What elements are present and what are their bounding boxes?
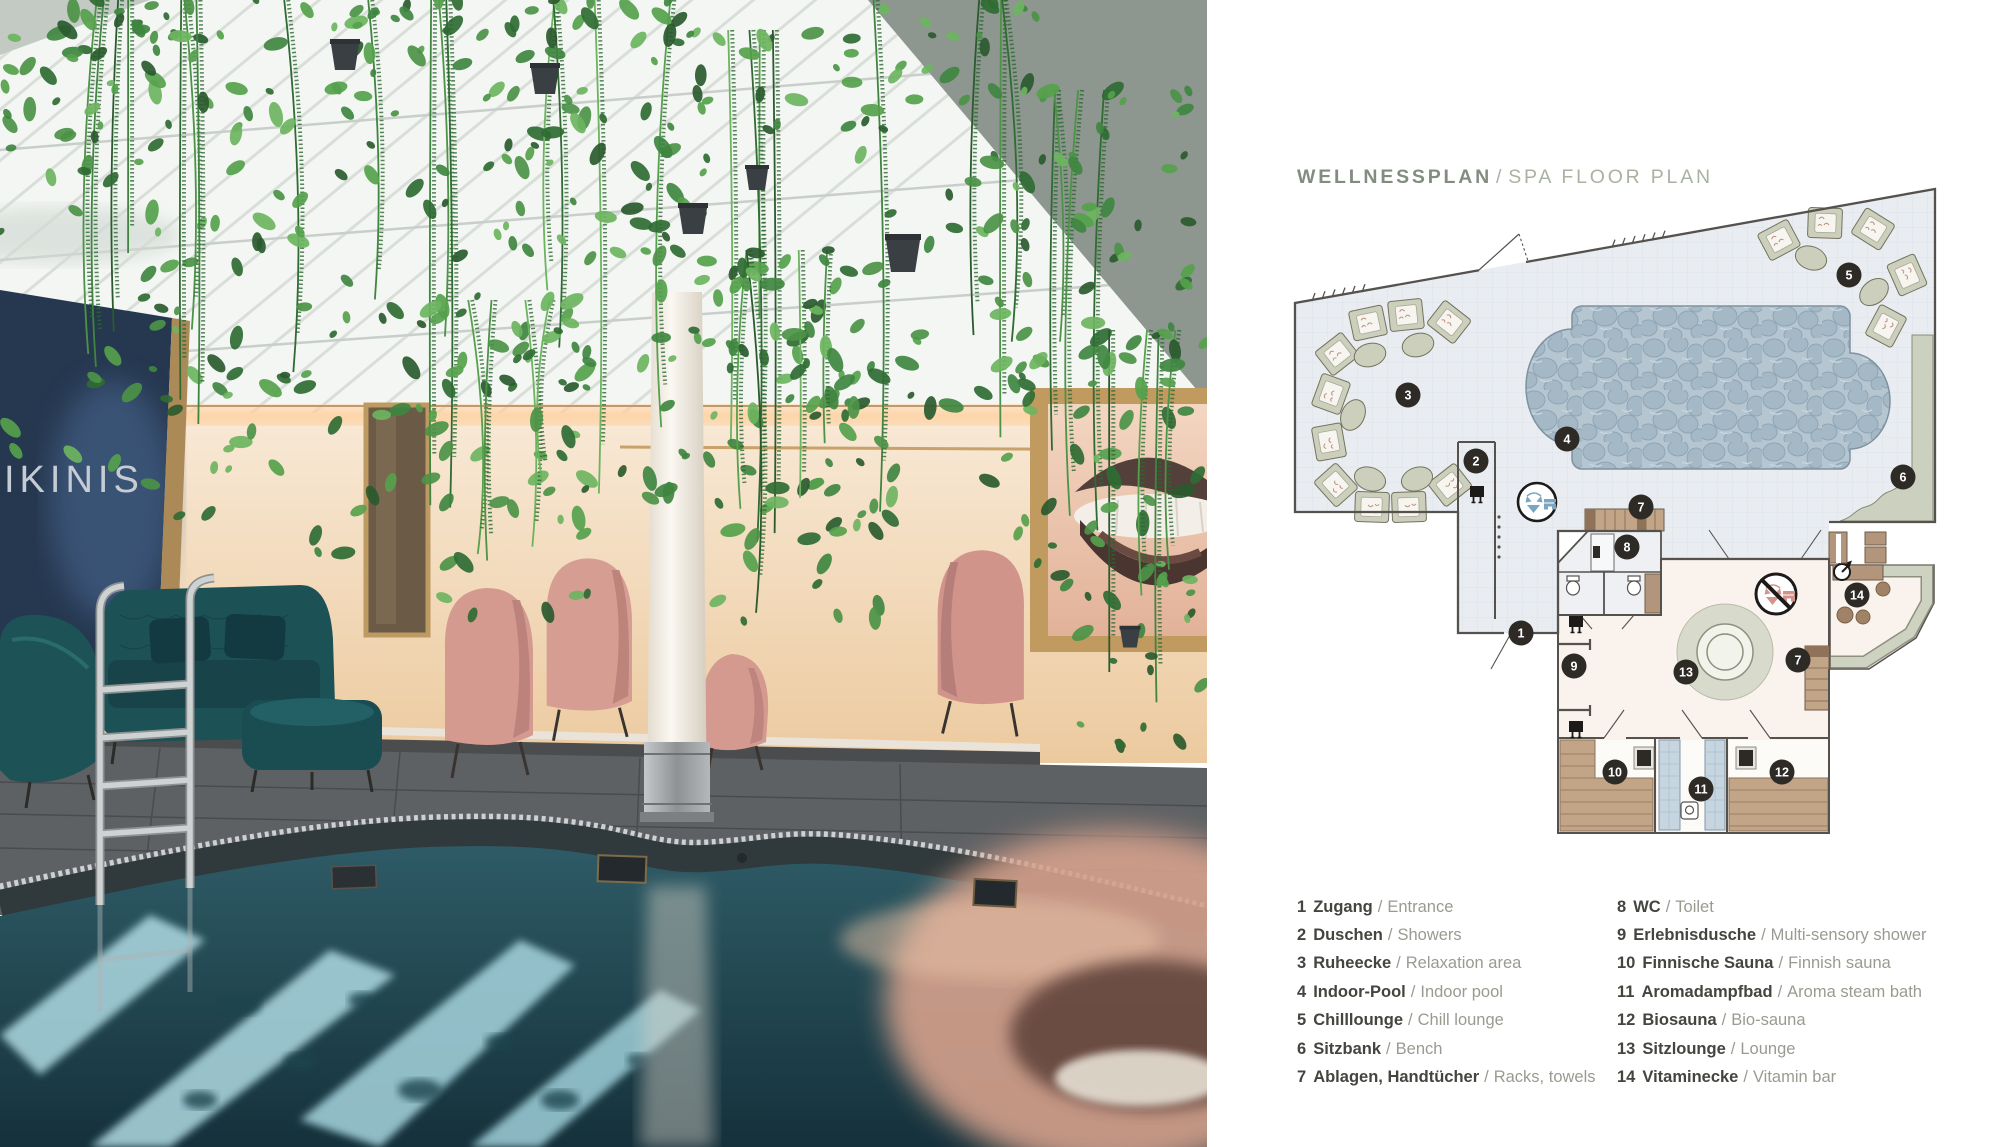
plan-marker-14: 14 <box>1845 583 1870 608</box>
legend-item-3: 3Ruheecke/Relaxation area <box>1297 950 1617 978</box>
legend-separator: / <box>1717 1011 1732 1030</box>
legend-separator: / <box>1373 898 1388 917</box>
legend-item-11: 11Aromadampfbad/Aroma steam bath <box>1617 978 1947 1006</box>
legend-label-en: Entrance <box>1387 898 1453 917</box>
legend-label-de: Vitaminecke <box>1642 1068 1738 1087</box>
plan-marker-12: 12 <box>1770 760 1795 785</box>
legend-number: 14 <box>1617 1068 1635 1087</box>
legend-item-5: 5Chilllounge/Chill lounge <box>1297 1007 1617 1035</box>
legend-label-de: Duschen <box>1313 926 1383 945</box>
legend-label-de: Sitzlounge <box>1642 1040 1725 1059</box>
vitamin-bar <box>1830 561 1934 670</box>
plan-marker-4: 4 <box>1555 427 1580 452</box>
sauna-stove-icon <box>1634 747 1654 769</box>
legend-label-en: Multi-sensory shower <box>1771 926 1927 945</box>
doorway-block <box>1829 532 1886 563</box>
legend-number: 6 <box>1297 1040 1306 1059</box>
legend-separator: / <box>1738 1068 1753 1087</box>
legend-label-de: Sitzbank <box>1313 1040 1381 1059</box>
legend-separator: / <box>1756 926 1771 945</box>
legend-label-en: Indoor pool <box>1420 983 1503 1002</box>
legend-number: 5 <box>1297 1011 1306 1030</box>
plan-marker-1: 1 <box>1509 621 1534 646</box>
plan-marker-11: 11 <box>1689 777 1714 802</box>
legend-label-de: Erlebnisdusche <box>1633 926 1756 945</box>
plan-marker-7: 7 <box>1629 495 1654 520</box>
plan-marker-8: 8 <box>1615 535 1640 560</box>
round-lounge <box>1677 604 1773 700</box>
legend-number: 2 <box>1297 926 1306 945</box>
floor-plan-panel: WELLNESSPLAN/SPA FLOOR PLAN <box>1207 0 2000 1147</box>
legend-number: 9 <box>1617 926 1626 945</box>
legend-label-de: Ablagen, Handtücher <box>1313 1068 1479 1087</box>
legend-separator: / <box>1773 983 1788 1002</box>
legend: 1Zugang/Entrance2Duschen/Showers3Ruheeck… <box>1297 893 1947 1092</box>
svg-text:10: 10 <box>1608 766 1622 780</box>
legend-label-de: WC <box>1633 898 1661 917</box>
spa-photo: IKINIS <box>0 0 1207 1147</box>
legend-item-13: 13Sitzlounge/Lounge <box>1617 1035 1947 1063</box>
legend-separator: / <box>1479 1068 1494 1087</box>
legend-label-de: Indoor-Pool <box>1313 983 1406 1002</box>
plan-marker-13: 13 <box>1674 660 1699 685</box>
legend-label-en: Toilet <box>1675 898 1714 917</box>
plan-marker-6: 6 <box>1891 465 1916 490</box>
legend-separator: / <box>1773 954 1788 973</box>
legend-item-7: 7Ablagen, Handtücher/Racks, towels <box>1297 1063 1617 1091</box>
legend-separator: / <box>1381 1040 1396 1059</box>
legend-column-left: 1Zugang/Entrance2Duschen/Showers3Ruheeck… <box>1297 893 1617 1092</box>
legend-item-8: 8WC/Toilet <box>1617 893 1947 921</box>
legend-item-2: 2Duschen/Showers <box>1297 921 1617 949</box>
legend-separator: / <box>1403 1011 1418 1030</box>
legend-number: 3 <box>1297 954 1306 973</box>
legend-number: 11 <box>1617 983 1634 1002</box>
legend-number: 13 <box>1617 1040 1635 1059</box>
legend-item-10: 10Finnische Sauna/Finnish sauna <box>1617 950 1947 978</box>
legend-item-14: 14Vitaminecke/Vitamin bar <box>1617 1063 1947 1091</box>
svg-text:12: 12 <box>1775 766 1789 780</box>
legend-number: 8 <box>1617 898 1626 917</box>
svg-text:6: 6 <box>1900 471 1907 485</box>
legend-label-en: Racks, towels <box>1494 1068 1596 1087</box>
brochure-spread: IKINIS <box>0 0 2000 1147</box>
legend-separator: / <box>1383 926 1398 945</box>
legend-label-de: Chilllounge <box>1313 1011 1403 1030</box>
svg-text:1: 1 <box>1518 627 1525 641</box>
legend-item-12: 12Biosauna/Bio-sauna <box>1617 1007 1947 1035</box>
legend-label-de: Ruheecke <box>1313 954 1391 973</box>
legend-label-en: Vitamin bar <box>1753 1068 1836 1087</box>
legend-label-en: Relaxation area <box>1406 954 1522 973</box>
svg-text:4: 4 <box>1564 433 1571 447</box>
svg-text:7: 7 <box>1795 654 1802 668</box>
svg-text:3: 3 <box>1405 389 1412 403</box>
legend-item-6: 6Sitzbank/Bench <box>1297 1035 1617 1063</box>
plan-marker-3: 3 <box>1396 383 1421 408</box>
legend-label-en: Lounge <box>1740 1040 1795 1059</box>
plan-marker-10: 10 <box>1603 760 1628 785</box>
legend-label-en: Aroma steam bath <box>1787 983 1922 1002</box>
swimwear-allowed-icon <box>1518 483 1556 521</box>
column-reflection <box>640 886 714 1147</box>
legend-label-en: Bio-sauna <box>1731 1011 1805 1030</box>
legend-label-en: Chill lounge <box>1418 1011 1504 1030</box>
legend-label-de: Biosauna <box>1642 1011 1716 1030</box>
plan-marker-7: 7 <box>1786 648 1811 673</box>
legend-column-right: 8WC/Toilet9Erlebnisdusche/Multi-sensory … <box>1617 893 1947 1092</box>
svg-text:11: 11 <box>1694 783 1707 797</box>
plan-marker-5: 5 <box>1837 263 1862 288</box>
wall-text: IKINIS <box>4 459 144 501</box>
legend-label-de: Finnische Sauna <box>1642 954 1773 973</box>
steam-seat-icon <box>1681 802 1698 819</box>
legend-label-de: Zugang <box>1313 898 1373 917</box>
legend-label-de: Aromadampfbad <box>1641 983 1772 1002</box>
plan-marker-9: 9 <box>1562 654 1587 679</box>
svg-text:5: 5 <box>1846 269 1853 283</box>
biosauna-benches <box>1729 778 1828 831</box>
legend-number: 7 <box>1297 1068 1306 1087</box>
svg-text:7: 7 <box>1638 501 1645 515</box>
legend-number: 1 <box>1297 898 1306 917</box>
legend-separator: / <box>1661 898 1676 917</box>
plan-marker-2: 2 <box>1464 449 1489 474</box>
svg-text:13: 13 <box>1679 666 1693 680</box>
svg-text:2: 2 <box>1473 455 1480 469</box>
legend-item-1: 1Zugang/Entrance <box>1297 893 1617 921</box>
legend-item-9: 9Erlebnisdusche/Multi-sensory shower <box>1617 921 1947 949</box>
legend-separator: / <box>1391 954 1406 973</box>
gold-mirror <box>366 405 428 635</box>
legend-label-en: Showers <box>1397 926 1461 945</box>
legend-separator: / <box>1406 983 1421 1002</box>
legend-item-4: 4Indoor-Pool/Indoor pool <box>1297 978 1617 1006</box>
lips-artwork <box>1030 388 1207 652</box>
legend-number: 12 <box>1617 1011 1635 1030</box>
svg-text:8: 8 <box>1624 541 1631 555</box>
spa-floor-plan: 12345677891011121314 <box>1282 182 1942 852</box>
legend-label-en: Bench <box>1396 1040 1443 1059</box>
legend-separator: / <box>1726 1040 1741 1059</box>
no-swimwear-icon <box>1756 574 1796 614</box>
legend-label-en: Finnish sauna <box>1788 954 1891 973</box>
indoor-pool <box>1526 306 1890 469</box>
sauna-stove-icon <box>1736 747 1756 769</box>
legend-number: 4 <box>1297 983 1306 1002</box>
svg-text:9: 9 <box>1571 660 1578 674</box>
legend-number: 10 <box>1617 954 1635 973</box>
svg-text:14: 14 <box>1850 589 1864 603</box>
